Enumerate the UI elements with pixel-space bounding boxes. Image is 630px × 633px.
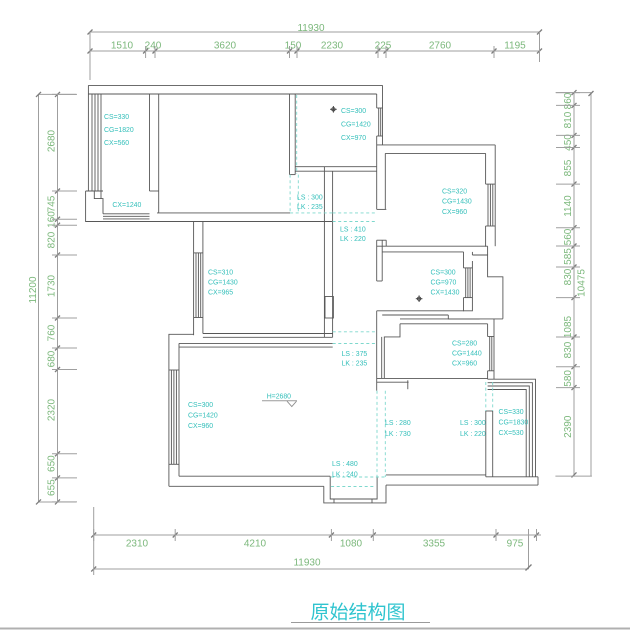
svg-text:3620: 3620 bbox=[214, 41, 237, 52]
svg-text:150: 150 bbox=[285, 41, 302, 52]
svg-text:CX=960: CX=960 bbox=[452, 361, 477, 368]
svg-text:2680: 2680 bbox=[47, 129, 58, 152]
svg-text:LS : 410: LS : 410 bbox=[340, 227, 366, 234]
svg-text:225: 225 bbox=[375, 41, 392, 52]
svg-text:2760: 2760 bbox=[429, 41, 452, 52]
svg-text:LK : 730: LK : 730 bbox=[385, 431, 411, 438]
svg-text:580: 580 bbox=[563, 370, 574, 387]
svg-text:CS=330: CS=330 bbox=[499, 409, 524, 416]
svg-text:原始结构图: 原始结构图 bbox=[310, 602, 405, 624]
svg-text:H=2680: H=2680 bbox=[267, 394, 291, 401]
svg-text:560: 560 bbox=[563, 228, 574, 245]
svg-text:CX=960: CX=960 bbox=[442, 209, 467, 216]
svg-text:745: 745 bbox=[47, 195, 58, 212]
svg-text:975: 975 bbox=[507, 539, 524, 550]
svg-text:CG=1830: CG=1830 bbox=[499, 420, 529, 427]
svg-text:1085: 1085 bbox=[563, 315, 574, 338]
svg-text:CS=280: CS=280 bbox=[452, 340, 477, 347]
svg-text:LS : 375: LS : 375 bbox=[342, 351, 368, 358]
svg-text:CG=1430: CG=1430 bbox=[208, 280, 238, 287]
svg-text:4210: 4210 bbox=[244, 539, 267, 550]
svg-text:CG=1430: CG=1430 bbox=[442, 199, 472, 206]
svg-text:11930: 11930 bbox=[297, 23, 325, 34]
svg-text:2230: 2230 bbox=[321, 41, 344, 52]
svg-text:CX=560: CX=560 bbox=[104, 140, 129, 147]
svg-text:855: 855 bbox=[563, 159, 574, 176]
svg-text:CX=965: CX=965 bbox=[208, 290, 233, 297]
svg-text:11930: 11930 bbox=[293, 558, 321, 569]
svg-text:CX=1430: CX=1430 bbox=[431, 290, 460, 297]
svg-text:LS : 280: LS : 280 bbox=[385, 420, 411, 427]
svg-text:CS=300: CS=300 bbox=[341, 108, 366, 115]
svg-text:CS=310: CS=310 bbox=[208, 269, 233, 276]
svg-text:CG=1440: CG=1440 bbox=[452, 351, 482, 358]
svg-text:CS=320: CS=320 bbox=[442, 189, 467, 196]
svg-text:LK : 220: LK : 220 bbox=[340, 236, 366, 243]
svg-text:830: 830 bbox=[563, 268, 574, 285]
svg-text:CX=1240: CX=1240 bbox=[112, 202, 141, 209]
svg-text:LK : 235: LK : 235 bbox=[342, 361, 368, 368]
svg-text:830: 830 bbox=[563, 341, 574, 358]
svg-text:CG=1420: CG=1420 bbox=[188, 413, 218, 420]
svg-text:CX=970: CX=970 bbox=[341, 135, 366, 142]
svg-text:CG=1820: CG=1820 bbox=[104, 127, 134, 134]
svg-text:CG=1420: CG=1420 bbox=[341, 122, 371, 129]
svg-text:CX=530: CX=530 bbox=[499, 430, 524, 437]
svg-text:655: 655 bbox=[47, 479, 58, 496]
svg-text:1195: 1195 bbox=[504, 41, 526, 52]
svg-text:1730: 1730 bbox=[47, 274, 58, 297]
svg-text:CS=300: CS=300 bbox=[431, 269, 456, 276]
svg-text:650: 650 bbox=[47, 455, 58, 472]
svg-text:2390: 2390 bbox=[563, 415, 574, 438]
svg-text:CG=970: CG=970 bbox=[431, 279, 457, 286]
svg-text:LK : 235: LK : 235 bbox=[297, 204, 323, 211]
svg-text:LK : 220: LK : 220 bbox=[460, 431, 486, 438]
svg-text:760: 760 bbox=[47, 324, 58, 341]
svg-text:LS : 300: LS : 300 bbox=[297, 195, 323, 202]
svg-text:CX=960: CX=960 bbox=[188, 423, 213, 430]
svg-text:1510: 1510 bbox=[111, 41, 134, 52]
svg-text:3355: 3355 bbox=[423, 539, 446, 550]
svg-text:LK : 240: LK : 240 bbox=[332, 472, 358, 479]
svg-text:585: 585 bbox=[563, 248, 574, 265]
svg-text:820: 820 bbox=[47, 231, 58, 248]
svg-text:LS : 480: LS : 480 bbox=[332, 461, 358, 468]
svg-text:CS=330: CS=330 bbox=[104, 114, 129, 121]
svg-text:1140: 1140 bbox=[563, 195, 574, 217]
svg-text:810: 810 bbox=[563, 111, 574, 128]
svg-text:LS : 300: LS : 300 bbox=[460, 420, 486, 427]
svg-text:680: 680 bbox=[47, 350, 58, 367]
svg-text:11200: 11200 bbox=[28, 276, 39, 304]
svg-text:2310: 2310 bbox=[126, 539, 149, 550]
svg-text:10475: 10475 bbox=[577, 269, 588, 297]
svg-text:2320: 2320 bbox=[47, 398, 58, 421]
svg-text:1080: 1080 bbox=[340, 539, 363, 550]
svg-text:CS=300: CS=300 bbox=[188, 402, 213, 409]
